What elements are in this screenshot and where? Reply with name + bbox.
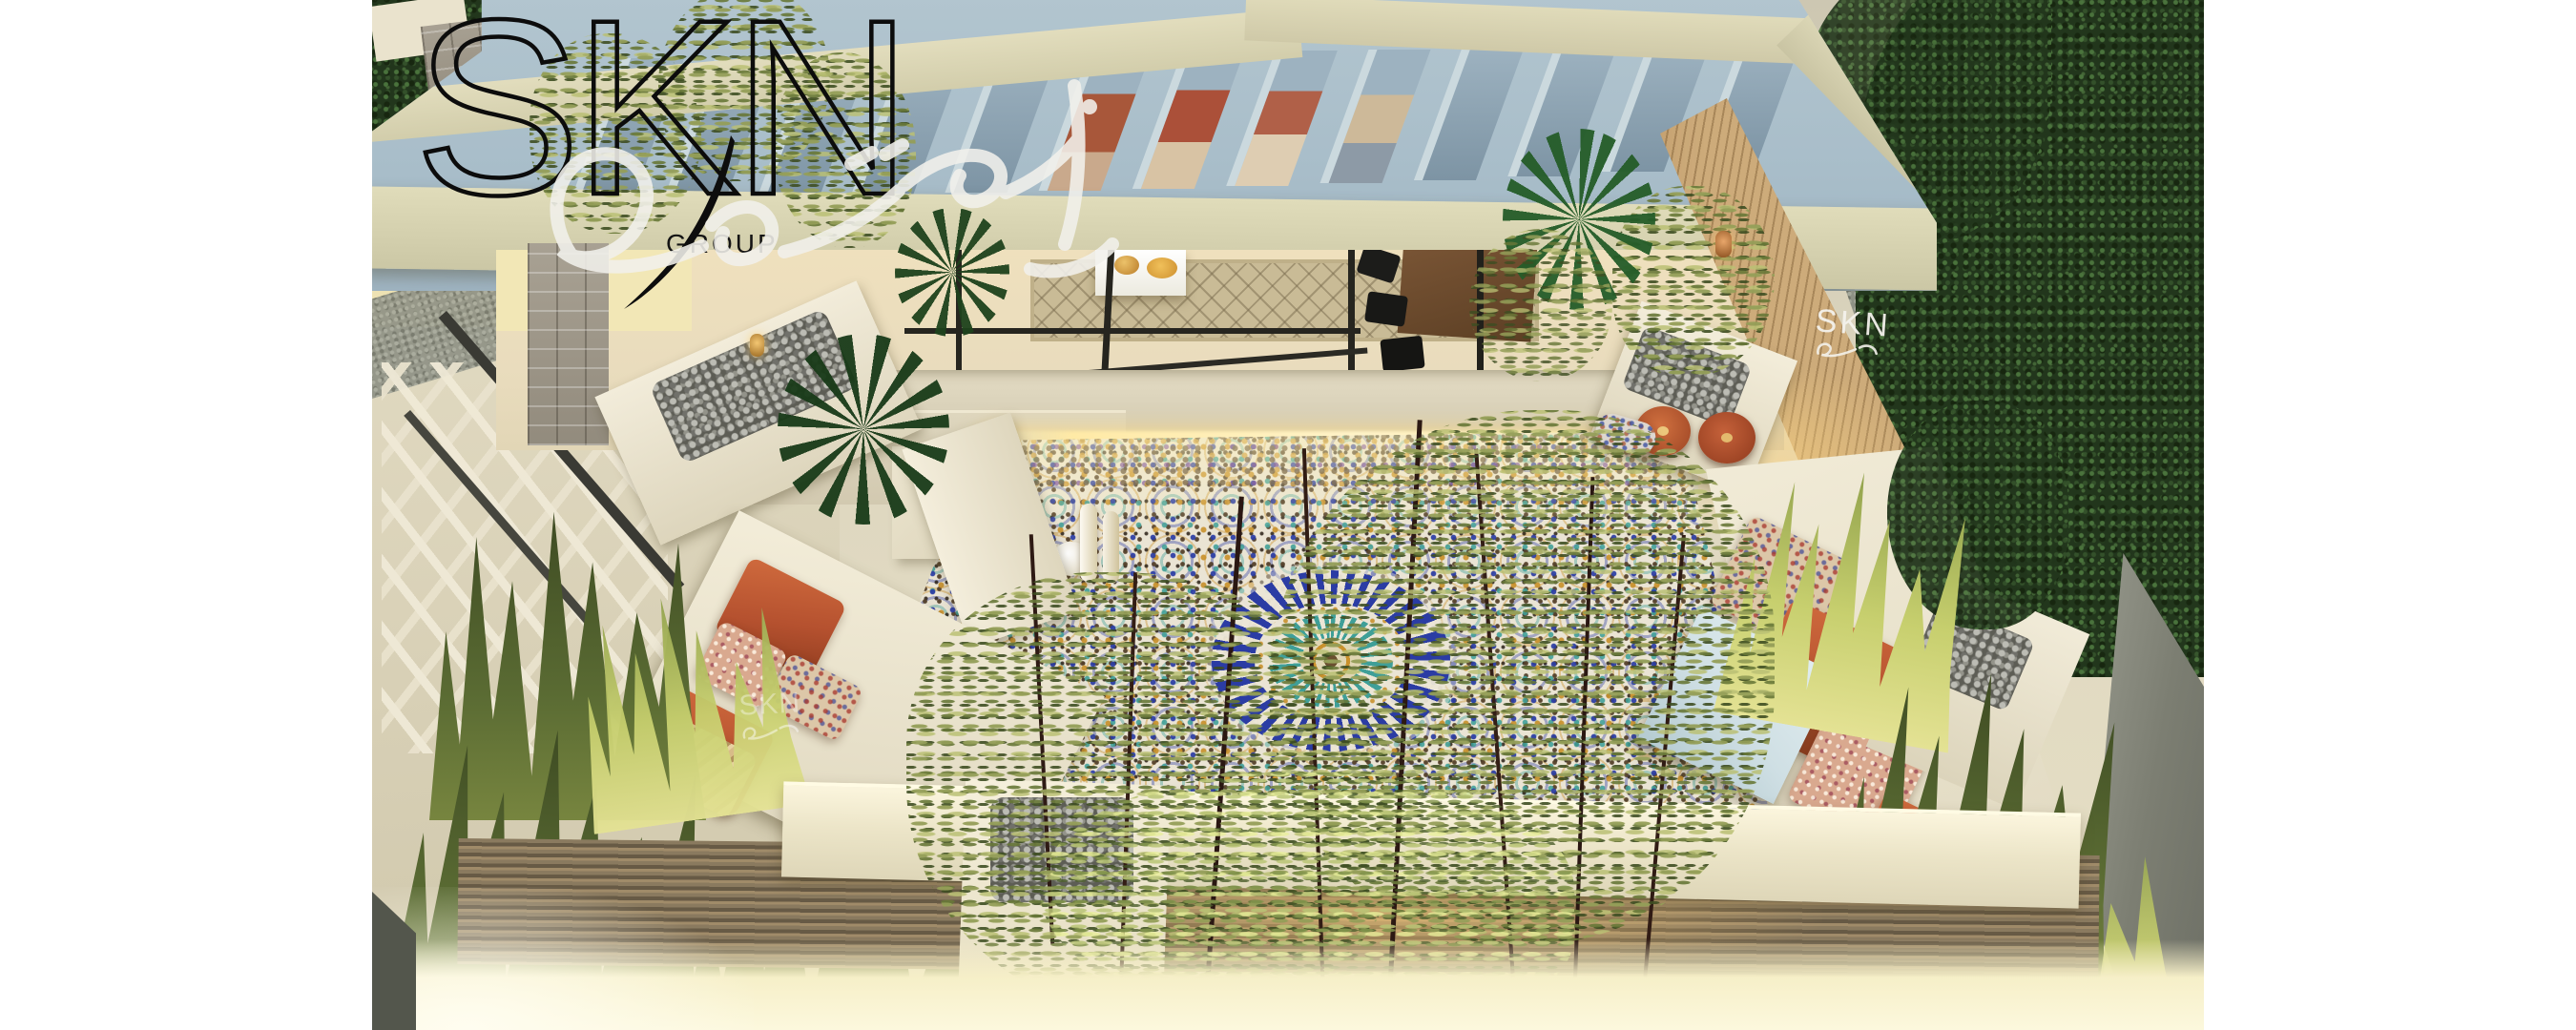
screenshot-canvas: SKN SKN	[0, 0, 2576, 1030]
bottom-left-bright-glow	[372, 887, 754, 1030]
watermark-text: SKN	[738, 687, 801, 721]
calligraphy-signature-icon	[1813, 336, 1881, 365]
courtyard-render: SKN SKN	[372, 0, 2204, 1030]
pergola-slat-opening	[1414, 49, 1524, 180]
palm-fronds-right	[1469, 229, 1612, 381]
pouf-button	[1721, 433, 1733, 443]
canvas-margin-left	[0, 0, 372, 1030]
pouf-button	[1657, 426, 1669, 436]
hanging-lantern-icon	[750, 334, 764, 357]
bar-stool	[1380, 336, 1424, 372]
hanging-lantern-icon	[1715, 231, 1732, 257]
calligraphy-signature-icon	[515, 57, 1126, 324]
pergola-slat-opening	[1132, 51, 1244, 189]
watermark: SKN	[738, 687, 803, 743]
calligraphy-signature-icon	[739, 719, 801, 743]
wall-logo: SKN	[1813, 302, 1892, 365]
canvas-margin-right	[2204, 0, 2576, 1030]
carved-vase-tall	[1080, 504, 1097, 582]
bar-stool	[1364, 291, 1408, 327]
gold-bowl	[1147, 257, 1177, 278]
signature-dot	[1082, 99, 1097, 114]
pergola-slat-opening	[1320, 50, 1431, 183]
pergola-slat-opening	[1226, 51, 1338, 186]
fan-palm-dark	[778, 334, 949, 525]
logo-lockup: SKN GROUP	[401, 0, 1088, 326]
